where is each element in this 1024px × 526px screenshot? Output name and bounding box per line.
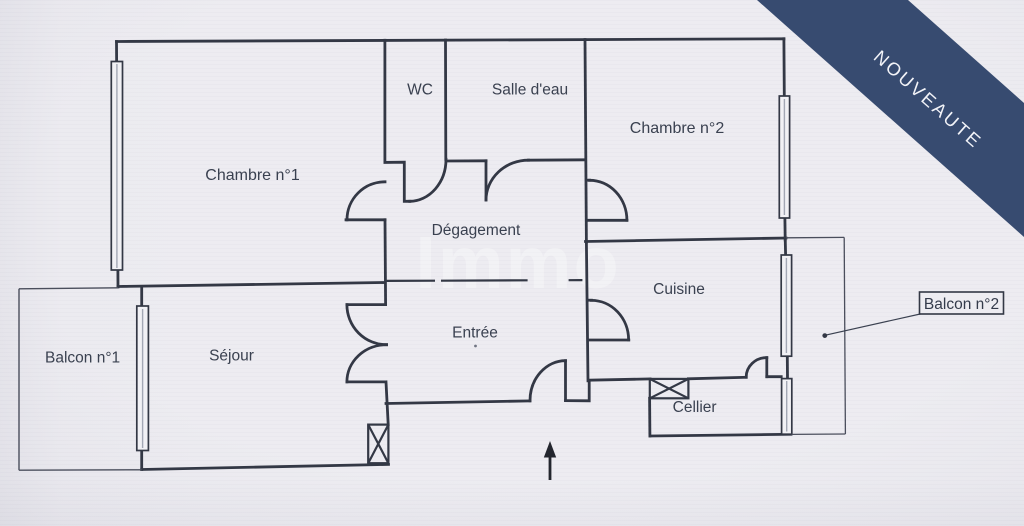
svg-text:Séjour: Séjour (209, 348, 254, 365)
svg-text:Chambre n°2: Chambre n°2 (630, 120, 725, 137)
svg-text:WC: WC (407, 82, 433, 99)
svg-text:Balcon n°2: Balcon n°2 (924, 296, 999, 313)
svg-text:Balcon n°1: Balcon n°1 (45, 350, 120, 367)
svg-text:Cuisine: Cuisine (653, 281, 705, 298)
svg-text:Entrée: Entrée (452, 325, 498, 342)
svg-text:Salle d'eau: Salle d'eau (492, 82, 568, 99)
svg-text:Chambre n°1: Chambre n°1 (205, 167, 300, 184)
svg-text:Dégagement: Dégagement (432, 222, 521, 239)
svg-text:Cellier: Cellier (673, 399, 717, 416)
